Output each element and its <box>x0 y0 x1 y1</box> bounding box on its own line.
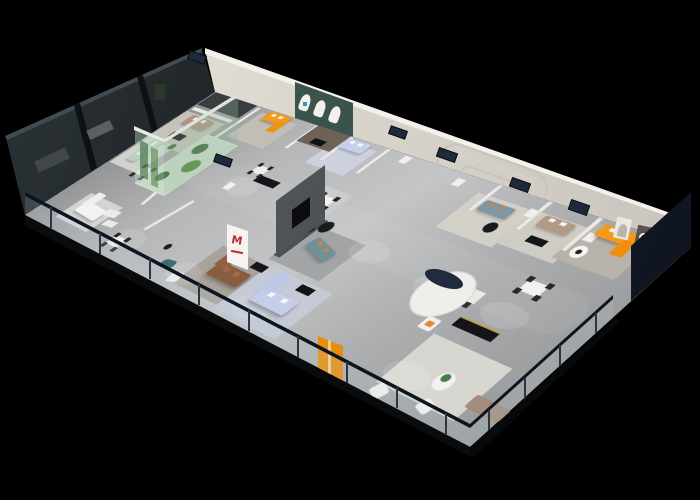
desk-chair-r1 <box>448 296 459 303</box>
armchair-white-j <box>415 397 437 415</box>
black-credenza-gold <box>451 316 501 342</box>
rug-front-left <box>55 193 123 232</box>
dining-chair-m1b <box>332 196 341 201</box>
atrium-plant-3 <box>152 170 172 182</box>
dining-chair-r1 <box>525 275 536 282</box>
floor-slab <box>25 92 691 447</box>
cylinder-column <box>395 264 490 324</box>
credenza-gold-line <box>460 316 500 334</box>
arch-niche-2 <box>312 98 327 117</box>
pillar-4 <box>522 208 540 219</box>
arch-niche-1 <box>297 92 312 111</box>
rug-dining-mid <box>296 185 353 217</box>
orange-end-sofa <box>593 224 642 247</box>
rug-mint <box>110 136 177 173</box>
brown-sofa <box>205 261 251 288</box>
arch-room-floor <box>296 126 350 152</box>
tan-sofa-pillow-1 <box>193 117 200 121</box>
light-spot-2 <box>217 173 266 199</box>
slate-pillow-2 <box>498 206 506 210</box>
arch-logo-dot <box>303 102 307 106</box>
peri-big-pillow-1 <box>267 292 276 298</box>
peri-big-pillow-2 <box>280 298 289 304</box>
dining-chair-fl4 <box>109 246 118 252</box>
tan-sofa-pillow-2 <box>200 120 207 124</box>
dining-chair-a3 <box>128 172 136 177</box>
dining-chair-r3 <box>512 287 523 294</box>
dining-chair-a4 <box>137 176 145 181</box>
peri-top-pillow-2 <box>356 143 363 147</box>
orange-top-chaise <box>265 121 287 133</box>
slate-pillow-1 <box>488 202 496 206</box>
tan-bottom-sofa <box>464 394 512 423</box>
teal-ottoman <box>158 258 179 268</box>
tan2-sofa <box>535 215 577 235</box>
dining-chair-fl1 <box>113 232 122 237</box>
rug-peri-big <box>212 265 332 339</box>
dining-chair-m2c <box>246 170 254 174</box>
rug-tan2 <box>495 210 593 264</box>
wall-right-1 <box>467 185 503 212</box>
dining-chair-m1c <box>307 200 316 205</box>
dining-chair-a1 <box>141 164 149 169</box>
wall-right-3 <box>561 217 604 251</box>
dining-chair-m1d <box>320 205 329 210</box>
light-spot-9 <box>223 290 280 325</box>
dining-chair-a2 <box>150 167 158 172</box>
logo-pillar-base <box>226 244 247 257</box>
white-bench-2 <box>101 220 118 228</box>
white-bench-1 <box>102 209 122 218</box>
pillar-3 <box>450 178 467 188</box>
dining-chair-r4 <box>531 294 542 301</box>
rug-teal <box>269 224 366 281</box>
rug-peri-top <box>305 139 377 176</box>
dim-desk-behind-glass <box>86 120 114 140</box>
coffee-table-brown <box>249 262 269 273</box>
wall-arch-left <box>284 125 320 149</box>
rug-bottom-right <box>377 333 513 421</box>
teal-sofa <box>305 237 337 262</box>
wall-peri-right <box>355 148 392 174</box>
dining-chair-m2d <box>256 174 264 178</box>
light-spot-8 <box>157 258 210 290</box>
desk-right <box>451 284 486 304</box>
brown-cushion-1 <box>222 267 232 273</box>
wall-arch-right <box>318 136 354 161</box>
tan2-pillow-2 <box>559 222 568 227</box>
teal-pillow-2 <box>323 248 330 253</box>
wall-curve-1 <box>140 168 186 205</box>
pillar-2 <box>397 155 413 164</box>
orange-end-chaise <box>608 239 637 258</box>
light-spot-3 <box>275 203 328 232</box>
armchair-white-2 <box>368 382 389 401</box>
feature-wall-base <box>273 219 328 258</box>
arch-room-table <box>309 138 327 146</box>
dining-chair-r2 <box>545 283 556 290</box>
pillar-1 <box>222 182 237 191</box>
black-pouf-1 <box>314 220 337 234</box>
rug-tan-room <box>144 111 225 153</box>
dim-sofa-behind-glass <box>34 147 70 172</box>
floorplan-projection <box>25 92 691 447</box>
orange-end-pillow-1 <box>608 228 617 233</box>
peri-top-sofa <box>338 138 372 154</box>
rug-brown <box>172 245 277 308</box>
pillar-cap-4 <box>436 147 458 163</box>
coffee-table-a <box>167 131 187 141</box>
pillar-5 <box>581 232 600 243</box>
peri-big-sofa <box>249 286 300 316</box>
atrium-plant-1 <box>188 142 212 155</box>
dining-table-mid2 <box>251 165 270 175</box>
dining-table-fl <box>106 235 127 248</box>
armchair-orange-accent <box>417 316 443 332</box>
pillar-cap-1 <box>187 50 207 64</box>
brown-cushion-2 <box>231 271 241 277</box>
dining-chair-m2b <box>267 166 275 170</box>
brown-chaise <box>214 249 246 270</box>
rug-slate <box>435 192 535 247</box>
dim-plant-behind-glass <box>155 84 165 100</box>
peri-big-chaise <box>258 272 292 294</box>
tan-sofa <box>181 115 216 131</box>
round-plant-table <box>427 370 461 393</box>
light-spot-5 <box>405 269 467 304</box>
round-table-slate <box>479 221 502 234</box>
dining-table-right <box>518 279 550 297</box>
coffee-table-peri <box>295 284 316 296</box>
plant-a <box>166 143 179 150</box>
orange-top-pillow-1 <box>270 114 277 117</box>
dining-chair-fl2 <box>123 237 132 242</box>
peri-top-pillow-1 <box>349 141 356 145</box>
mint-sofa <box>126 138 166 162</box>
rug-orange-end <box>552 221 657 280</box>
slate-sofa <box>476 200 517 220</box>
arch-niche-3 <box>327 104 342 123</box>
orange-top-sofa <box>260 111 293 126</box>
atrium-floor <box>134 135 238 197</box>
wall-curve-2 <box>143 200 195 231</box>
dining-chair-m2a <box>257 163 265 167</box>
round-table-end-deco <box>574 249 584 255</box>
dining-chair-fl3 <box>99 241 108 246</box>
white-l-sofa <box>74 201 107 222</box>
teal-pillow-1 <box>317 241 324 246</box>
orange-top-pillow-2 <box>277 116 284 119</box>
floor-walkway-sheen <box>125 135 602 342</box>
light-spot-4 <box>341 236 399 268</box>
side-table-black <box>162 243 174 250</box>
dining-chair-m1a <box>319 191 328 196</box>
pillar-cap-3 <box>388 125 408 139</box>
round-table-end <box>565 244 592 260</box>
dining-table-a <box>134 166 154 177</box>
armchair-orange-seat <box>424 320 435 327</box>
wall-vert-a <box>199 107 261 148</box>
light-spot-10 <box>373 355 440 397</box>
tan2-pillow-1 <box>548 218 557 223</box>
white-l-chaise <box>82 192 107 207</box>
wall-right-2 <box>514 201 553 231</box>
black-credenza-a <box>253 175 281 188</box>
showroom-render-stage: M <box>0 0 700 500</box>
dark-room-nook <box>197 92 257 118</box>
dining-table-mid <box>312 194 336 207</box>
desk-chair-r2 <box>461 301 472 308</box>
light-spot-7 <box>105 225 154 254</box>
light-spot-6 <box>471 297 538 335</box>
atrium-plant-2 <box>177 158 205 174</box>
orange-end-pillow-2 <box>619 232 628 237</box>
orange-cabinet-top <box>320 351 342 365</box>
wall-back-a <box>191 107 234 123</box>
coffee-table-tan2 <box>524 235 548 247</box>
mint-sofa-pillow-1 <box>150 141 158 146</box>
light-spot-1 <box>174 145 220 169</box>
round-plant-table-plant <box>438 373 453 384</box>
mint-sofa-pillow-2 <box>136 150 144 155</box>
armchair-white-fl <box>165 272 185 283</box>
rug-orange-top <box>227 112 298 148</box>
black-pouf-2 <box>302 224 318 233</box>
